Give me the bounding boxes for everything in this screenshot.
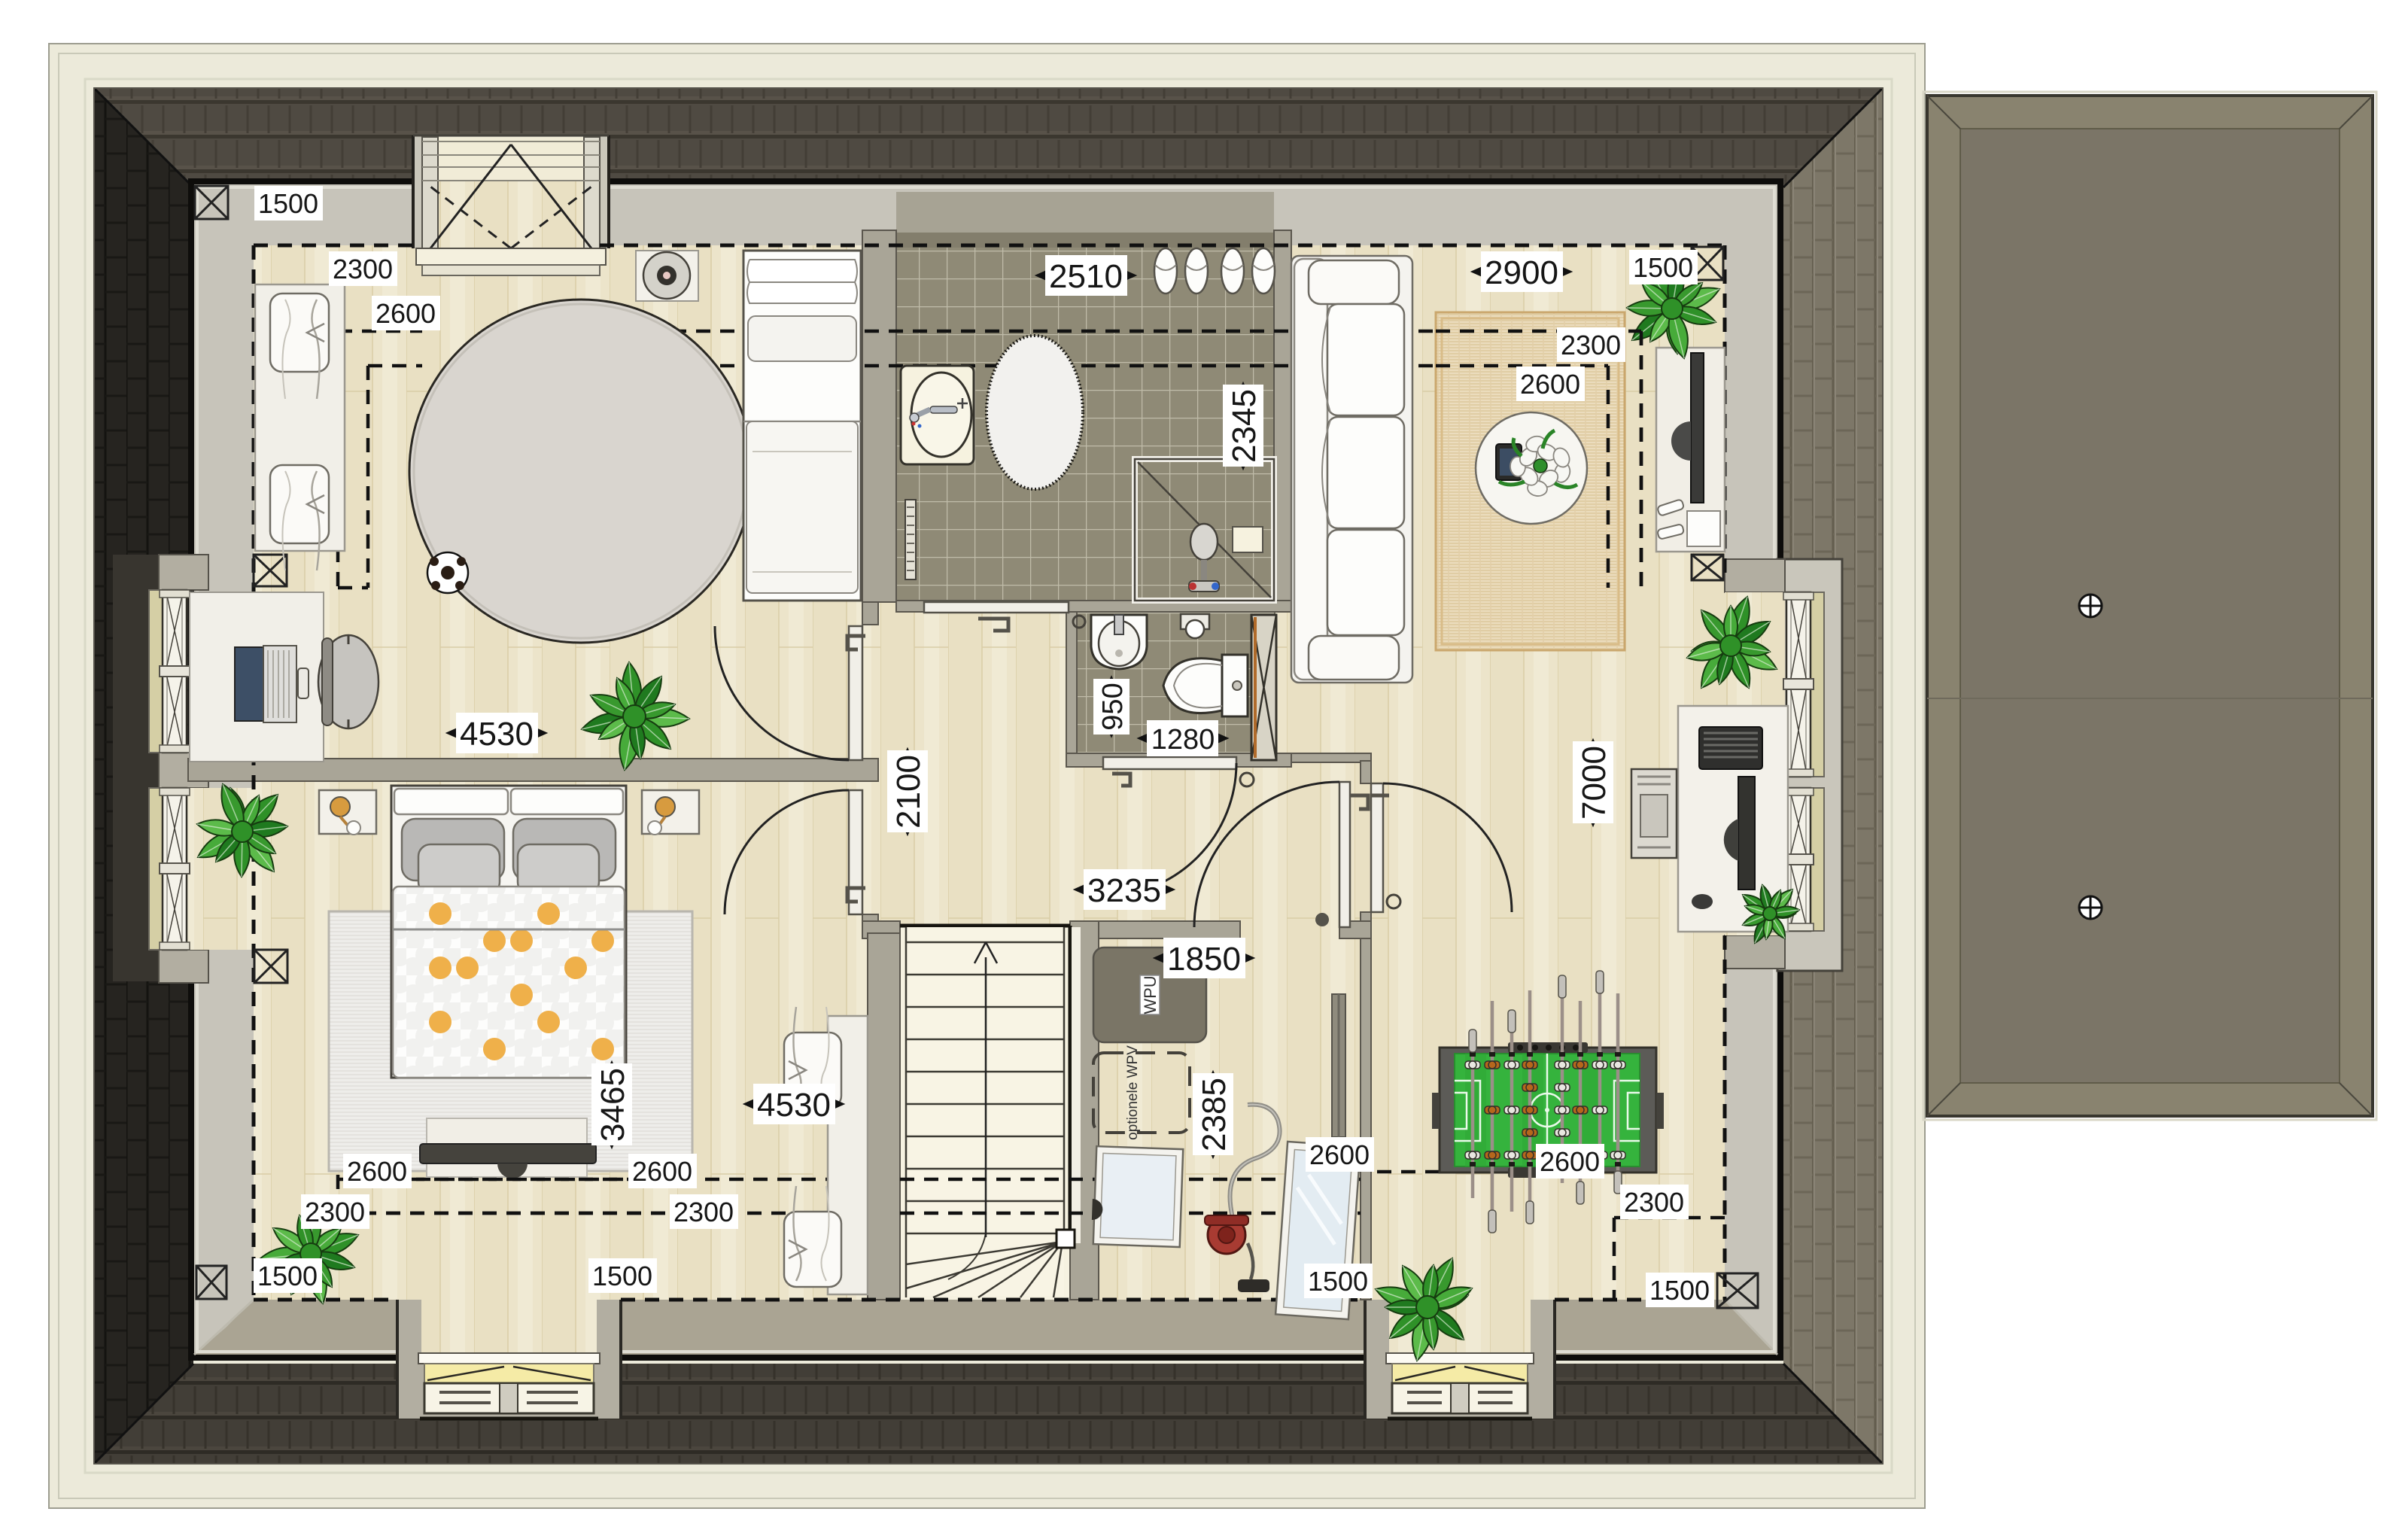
- svg-text:2600: 2600: [1540, 1146, 1600, 1177]
- svg-text:1500: 1500: [258, 188, 318, 219]
- svg-text:3235: 3235: [1087, 872, 1161, 909]
- svg-text:1850: 1850: [1167, 941, 1241, 978]
- svg-text:1280: 1280: [1151, 724, 1215, 756]
- svg-text:2345: 2345: [1226, 389, 1263, 463]
- svg-text:4530: 4530: [757, 1087, 831, 1124]
- svg-text:2510: 2510: [1049, 258, 1123, 295]
- svg-text:2300: 2300: [333, 254, 393, 284]
- svg-text:2600: 2600: [632, 1156, 692, 1187]
- svg-text:2300: 2300: [305, 1197, 365, 1227]
- svg-text:2600: 2600: [375, 298, 436, 329]
- svg-text:1500: 1500: [257, 1261, 318, 1291]
- svg-text:3465: 3465: [594, 1068, 631, 1142]
- svg-text:2300: 2300: [1561, 330, 1621, 360]
- svg-text:4530: 4530: [460, 716, 534, 753]
- svg-text:2300: 2300: [1624, 1187, 1684, 1218]
- svg-text:1500: 1500: [592, 1261, 652, 1291]
- svg-text:1500: 1500: [1649, 1275, 1710, 1306]
- svg-text:2900: 2900: [1485, 254, 1558, 291]
- svg-text:2100: 2100: [890, 755, 927, 829]
- svg-text:1500: 1500: [1308, 1266, 1368, 1297]
- svg-text:1500: 1500: [1633, 252, 1693, 283]
- svg-text:2300: 2300: [673, 1197, 734, 1227]
- svg-text:optionele WPV: optionele WPV: [1125, 1045, 1141, 1140]
- svg-text:2600: 2600: [1309, 1139, 1370, 1170]
- svg-text:7000: 7000: [1576, 746, 1613, 820]
- svg-text:950: 950: [1097, 683, 1129, 730]
- svg-text:2600: 2600: [1520, 369, 1580, 400]
- svg-text:2385: 2385: [1196, 1078, 1233, 1151]
- svg-text:2600: 2600: [347, 1156, 407, 1187]
- svg-text:WPU: WPU: [1141, 975, 1160, 1014]
